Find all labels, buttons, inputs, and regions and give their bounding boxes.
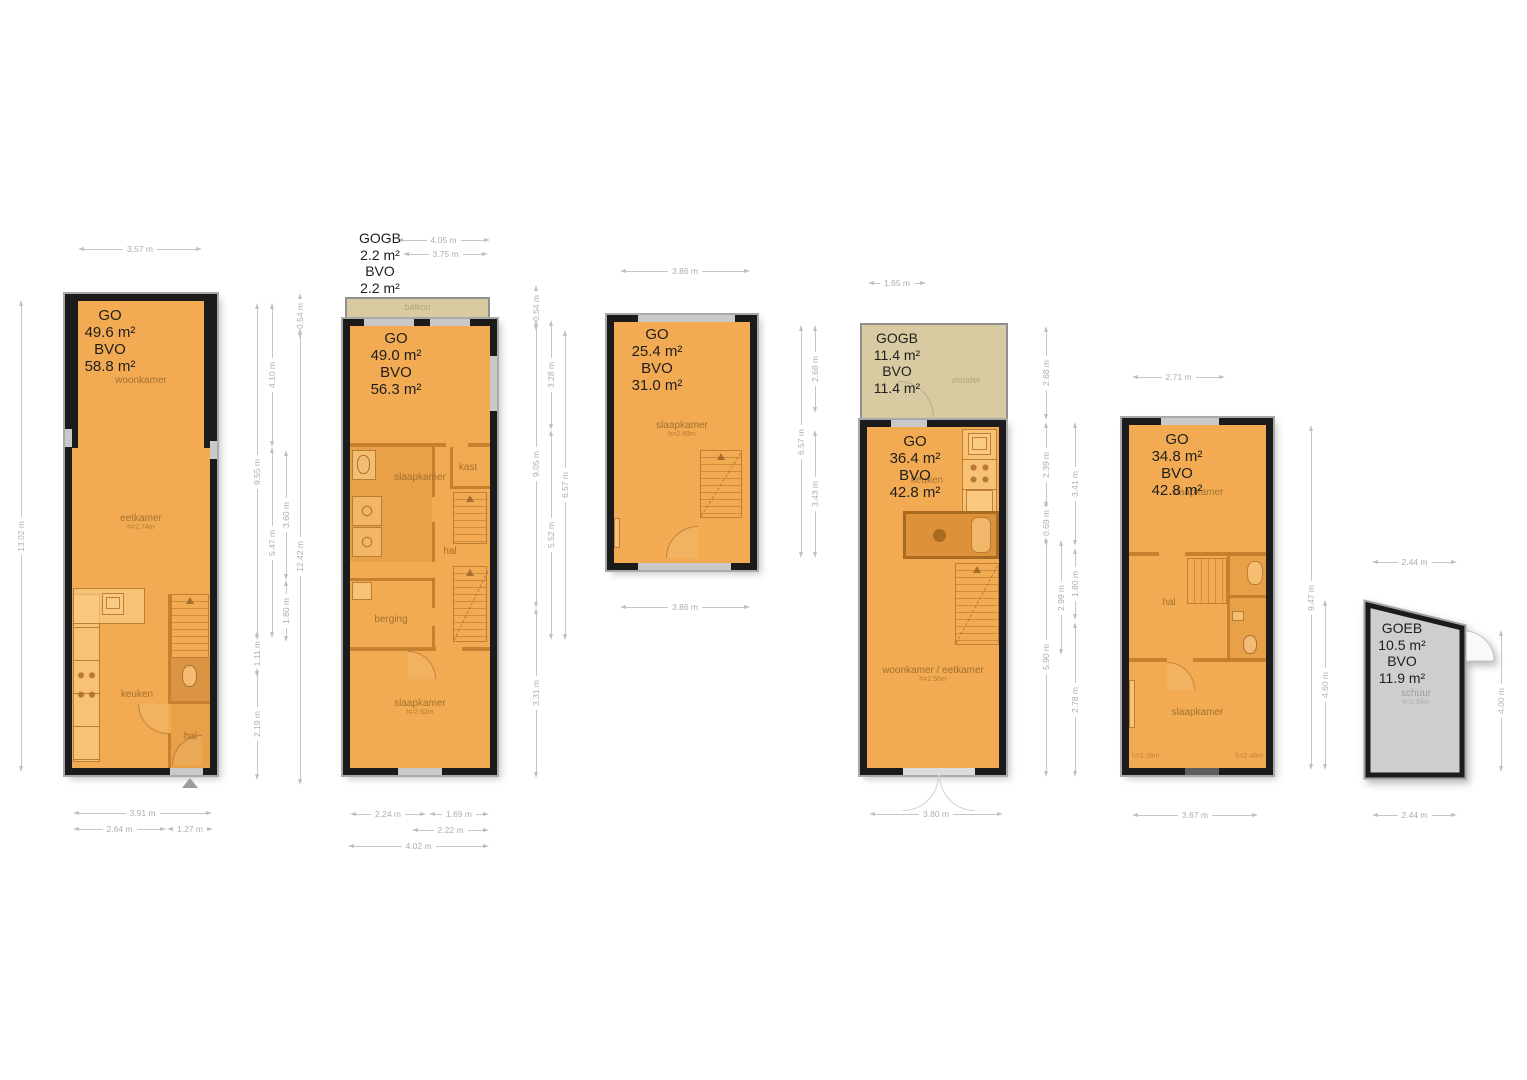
room-height: h=2.54m bbox=[1386, 699, 1446, 706]
go-value: 49.0 m² bbox=[358, 347, 434, 364]
dimension: 1.65 m bbox=[868, 278, 926, 288]
partition-wall bbox=[168, 594, 171, 704]
dimension: 3.28 m bbox=[546, 320, 556, 430]
sink-icon bbox=[1247, 561, 1263, 585]
dimension: 9.05 m bbox=[531, 320, 541, 608]
door-arc bbox=[939, 775, 975, 811]
go-value: 49.6 m² bbox=[76, 324, 144, 341]
door-gap bbox=[1185, 768, 1219, 775]
window bbox=[398, 768, 442, 775]
dimension: 4.00 m bbox=[1496, 630, 1506, 772]
dimension: 5.52 m bbox=[546, 430, 556, 640]
floorplan-5: GO 34.8 m² BVO 42.8 m² slaapkamer hal sl… bbox=[1122, 418, 1273, 775]
dimension: 1.80 m bbox=[1070, 548, 1080, 620]
bvo-value: 42.8 m² bbox=[1135, 482, 1219, 499]
go-label: GO bbox=[358, 330, 434, 347]
area-summary-plan3: GO 25.4 m² BVO 31.0 m² bbox=[620, 326, 694, 394]
dimension: 2.64 m bbox=[73, 824, 166, 834]
room-height: h=2.62m bbox=[350, 709, 490, 716]
toilet-icon bbox=[182, 665, 197, 687]
bvo-label: BVO bbox=[866, 363, 928, 380]
window bbox=[638, 315, 735, 322]
partition-wall bbox=[432, 626, 435, 647]
radiator bbox=[1129, 680, 1135, 728]
go-value: 25.4 m² bbox=[620, 343, 694, 360]
entrance-marker-icon bbox=[182, 778, 198, 788]
dimension: 3.75 m bbox=[403, 249, 488, 259]
double-door-gap bbox=[903, 768, 975, 775]
stairs-up-arrow-icon bbox=[717, 453, 725, 460]
bvo-label: BVO bbox=[1374, 653, 1430, 670]
stairs-up-arrow-icon bbox=[186, 597, 194, 604]
area-summary-plan1: GO 49.6 m² BVO 58.8 m² bbox=[76, 307, 144, 375]
bvo-label: BVO bbox=[76, 341, 144, 358]
dimension: 6.57 m bbox=[560, 330, 570, 640]
area-summary-plan4: GO 36.4 m² BVO 42.8 m² bbox=[875, 433, 955, 501]
floorplan-3: GO 25.4 m² BVO 31.0 m² slaapkamer h=2.49… bbox=[607, 315, 757, 570]
floorplan-2: GO 49.0 m² BVO 56.3 m² slaapkamer kast h… bbox=[343, 319, 497, 775]
stairs-up-arrow-icon bbox=[466, 569, 474, 576]
window bbox=[430, 319, 470, 326]
area-summary-schuur: GOEB 10.5 m² BVO 11.9 m² bbox=[1374, 620, 1430, 686]
room-label-kast: kast bbox=[446, 462, 490, 473]
bvo-label: BVO bbox=[1135, 465, 1219, 482]
door-arc bbox=[666, 526, 698, 558]
room-label-keuken: keuken bbox=[92, 689, 182, 700]
room-label-schuur: schuur h=2.54m bbox=[1386, 688, 1446, 706]
stove-icon bbox=[966, 460, 993, 487]
shed-door-arc bbox=[1464, 631, 1494, 661]
dimension: 12.42 m bbox=[295, 328, 305, 785]
dimension: 2.68 m bbox=[810, 325, 820, 413]
bvo-label: BVO bbox=[620, 360, 694, 377]
dimension: 1.80 m bbox=[281, 580, 291, 642]
door-arc bbox=[138, 704, 168, 734]
room-label-berging: berging bbox=[350, 614, 432, 625]
partition-wall bbox=[1129, 658, 1167, 662]
bathtub-icon bbox=[971, 517, 991, 553]
dimension: 2.68 m bbox=[1041, 326, 1051, 420]
room-label-slaapkamer: slaapkamer h=2.62m bbox=[350, 698, 490, 716]
dimension: 3.31 m bbox=[531, 608, 541, 778]
dimension: 2.19 m bbox=[252, 668, 262, 780]
sink-basin-icon bbox=[972, 437, 987, 450]
dimension: 3.91 m bbox=[73, 808, 212, 818]
dimension: 1.27 m bbox=[168, 824, 212, 834]
room-height: h=2.49m bbox=[614, 431, 750, 438]
bvo-value: 42.8 m² bbox=[875, 484, 955, 501]
dimension: 2.99 m bbox=[1056, 540, 1066, 655]
sink-basin-icon bbox=[106, 597, 120, 609]
go-label: GO bbox=[620, 326, 694, 343]
go-value: 34.8 m² bbox=[1135, 448, 1219, 465]
dimension: 1.69 m bbox=[429, 809, 489, 819]
go-label: GO bbox=[875, 433, 955, 450]
dimension: 0.54 m bbox=[531, 296, 541, 319]
room-height-left: h=1.98m bbox=[1132, 753, 1159, 760]
door-gap bbox=[891, 420, 927, 427]
dimension: 13.02 m bbox=[16, 300, 26, 772]
dimension: 3.86 m bbox=[620, 602, 750, 612]
window bbox=[65, 429, 72, 447]
washer-icon bbox=[352, 527, 382, 557]
sink-icon bbox=[1232, 611, 1244, 621]
room-label-eetkamer: eetkamer h=2.74m bbox=[72, 513, 210, 531]
dimension: 1.11 m bbox=[252, 640, 262, 668]
room-label-slaapkamer: slaapkamer h=2.49m bbox=[614, 420, 750, 438]
toilet-icon bbox=[1243, 635, 1257, 654]
washer-icon bbox=[352, 496, 382, 526]
dimension: 2.39 m bbox=[1041, 422, 1051, 508]
partition-wall bbox=[432, 578, 435, 608]
room-label-balkon: balkon bbox=[347, 302, 488, 312]
room-label-hal: hal bbox=[171, 731, 210, 742]
go-label: GO bbox=[76, 307, 144, 324]
dimension: 4.02 m bbox=[348, 841, 489, 851]
door-arc bbox=[903, 775, 939, 811]
gogb-label: GOGB bbox=[866, 330, 928, 347]
bvo-label: BVO bbox=[875, 467, 955, 484]
dimension: 0.69 m bbox=[1041, 508, 1051, 537]
partition-wall bbox=[462, 647, 490, 651]
dimension: 5.90 m bbox=[1041, 537, 1051, 777]
window bbox=[638, 563, 731, 570]
area-summary-plan5: GO 34.8 m² BVO 42.8 m² bbox=[1135, 431, 1219, 499]
partition-wall bbox=[1185, 552, 1266, 556]
partition-wall bbox=[450, 486, 490, 489]
dimension: 6.57 m bbox=[796, 325, 806, 558]
goeb-value: 10.5 m² bbox=[1374, 637, 1430, 654]
room-label-hal: hal bbox=[420, 546, 480, 557]
area-summary-vlonder: GOGB 11.4 m² BVO 11.4 m² bbox=[866, 330, 928, 396]
dimension: 2.22 m bbox=[412, 825, 489, 835]
partition-wall bbox=[171, 701, 210, 704]
dimension: 3.41 m bbox=[1070, 422, 1080, 546]
goeb-label: GOEB bbox=[1374, 620, 1430, 637]
drain-icon bbox=[933, 529, 946, 542]
stairs-up-arrow-icon bbox=[466, 495, 474, 502]
room-label-slaapkamer-boven: slaapkamer bbox=[350, 472, 490, 483]
bvo-label: BVO bbox=[358, 364, 434, 381]
gogb-label: GOGB bbox=[349, 230, 411, 247]
dimension: 3.86 m bbox=[620, 266, 750, 276]
dimension: 3.57 m bbox=[78, 244, 202, 254]
dimension: 5.47 m bbox=[267, 447, 277, 638]
door-arc bbox=[408, 651, 436, 679]
window bbox=[490, 356, 497, 411]
room-label-hal: hal bbox=[1139, 597, 1199, 608]
entrance-door-gap bbox=[170, 768, 203, 775]
dimension: 0.54 m bbox=[295, 303, 305, 328]
room-height: h=2.74m bbox=[72, 524, 210, 531]
floorplan-1: GO 49.6 m² BVO 58.8 m² woonkamer eetkame… bbox=[65, 294, 217, 775]
go-label: GO bbox=[1135, 431, 1219, 448]
dimension: 2.44 m bbox=[1372, 557, 1457, 567]
room-height: h=2.56m bbox=[867, 676, 999, 683]
window bbox=[1161, 418, 1219, 425]
dimension: 3.43 m bbox=[810, 430, 820, 558]
room-label-slaapkamer: slaapkamer bbox=[1129, 707, 1266, 718]
window bbox=[364, 319, 414, 326]
partition-wall bbox=[1129, 552, 1159, 556]
dimension: 2.78 m bbox=[1070, 622, 1080, 777]
area-summary-plan2: GO 49.0 m² BVO 56.3 m² bbox=[358, 330, 434, 398]
storage-fixture bbox=[352, 582, 372, 600]
dimension: 9.47 m bbox=[1306, 425, 1316, 770]
dimension: 2.71 m bbox=[1132, 372, 1225, 382]
bvo-value: 58.8 m² bbox=[76, 358, 144, 375]
go-value: 36.4 m² bbox=[875, 450, 955, 467]
area-summary-balkon: GOGB 2.2 m² BVO 2.2 m² bbox=[349, 230, 411, 296]
radiator bbox=[614, 518, 620, 548]
partition-wall bbox=[1227, 556, 1230, 660]
room-label-woonkamer-eetkamer: woonkamer / eetkamer h=2.56m bbox=[867, 665, 999, 683]
partition-wall bbox=[1230, 595, 1266, 598]
gogb-value: 11.4 m² bbox=[866, 347, 928, 364]
gogb-value: 2.2 m² bbox=[349, 247, 411, 264]
dimension: 4.10 m bbox=[267, 303, 277, 447]
stairs-up-arrow-icon bbox=[973, 566, 981, 573]
bvo-value: 56.3 m² bbox=[358, 381, 434, 398]
bvo-value: 11.4 m² bbox=[866, 380, 928, 397]
door-arc bbox=[1167, 662, 1195, 690]
dimension: 3.67 m bbox=[1132, 810, 1258, 820]
dimension: 4.60 m bbox=[1320, 600, 1330, 770]
partition-wall bbox=[468, 443, 490, 447]
room-label-vlonder: vlonder bbox=[936, 375, 996, 385]
floorplan-sheet: { "colors": { "floor": "#f2ab53", "wall"… bbox=[0, 0, 1527, 1080]
stove-icon bbox=[74, 663, 99, 707]
bvo-value: 31.0 m² bbox=[620, 377, 694, 394]
bvo-value: 11.9 m² bbox=[1374, 670, 1430, 687]
dimension: 3.80 m bbox=[869, 809, 1003, 819]
dimension: 2.24 m bbox=[350, 809, 426, 819]
window bbox=[210, 441, 217, 459]
bvo-value: 2.2 m² bbox=[349, 280, 411, 297]
partition-wall bbox=[350, 578, 435, 581]
dimension: 3.60 m bbox=[281, 450, 291, 580]
partition-wall bbox=[1193, 658, 1266, 662]
dimension: 9.55 m bbox=[252, 303, 262, 640]
balkon: balkon bbox=[345, 297, 490, 320]
floorplan-4: GO 36.4 m² BVO 42.8 m² keuken woonkamer … bbox=[860, 420, 1006, 775]
bvo-label: BVO bbox=[349, 263, 411, 280]
dimension: 2.44 m bbox=[1372, 810, 1457, 820]
room-height-right: h=2.48m bbox=[1236, 753, 1263, 760]
partition-wall bbox=[350, 647, 436, 651]
room-label-woonkamer: woonkamer bbox=[72, 375, 210, 386]
